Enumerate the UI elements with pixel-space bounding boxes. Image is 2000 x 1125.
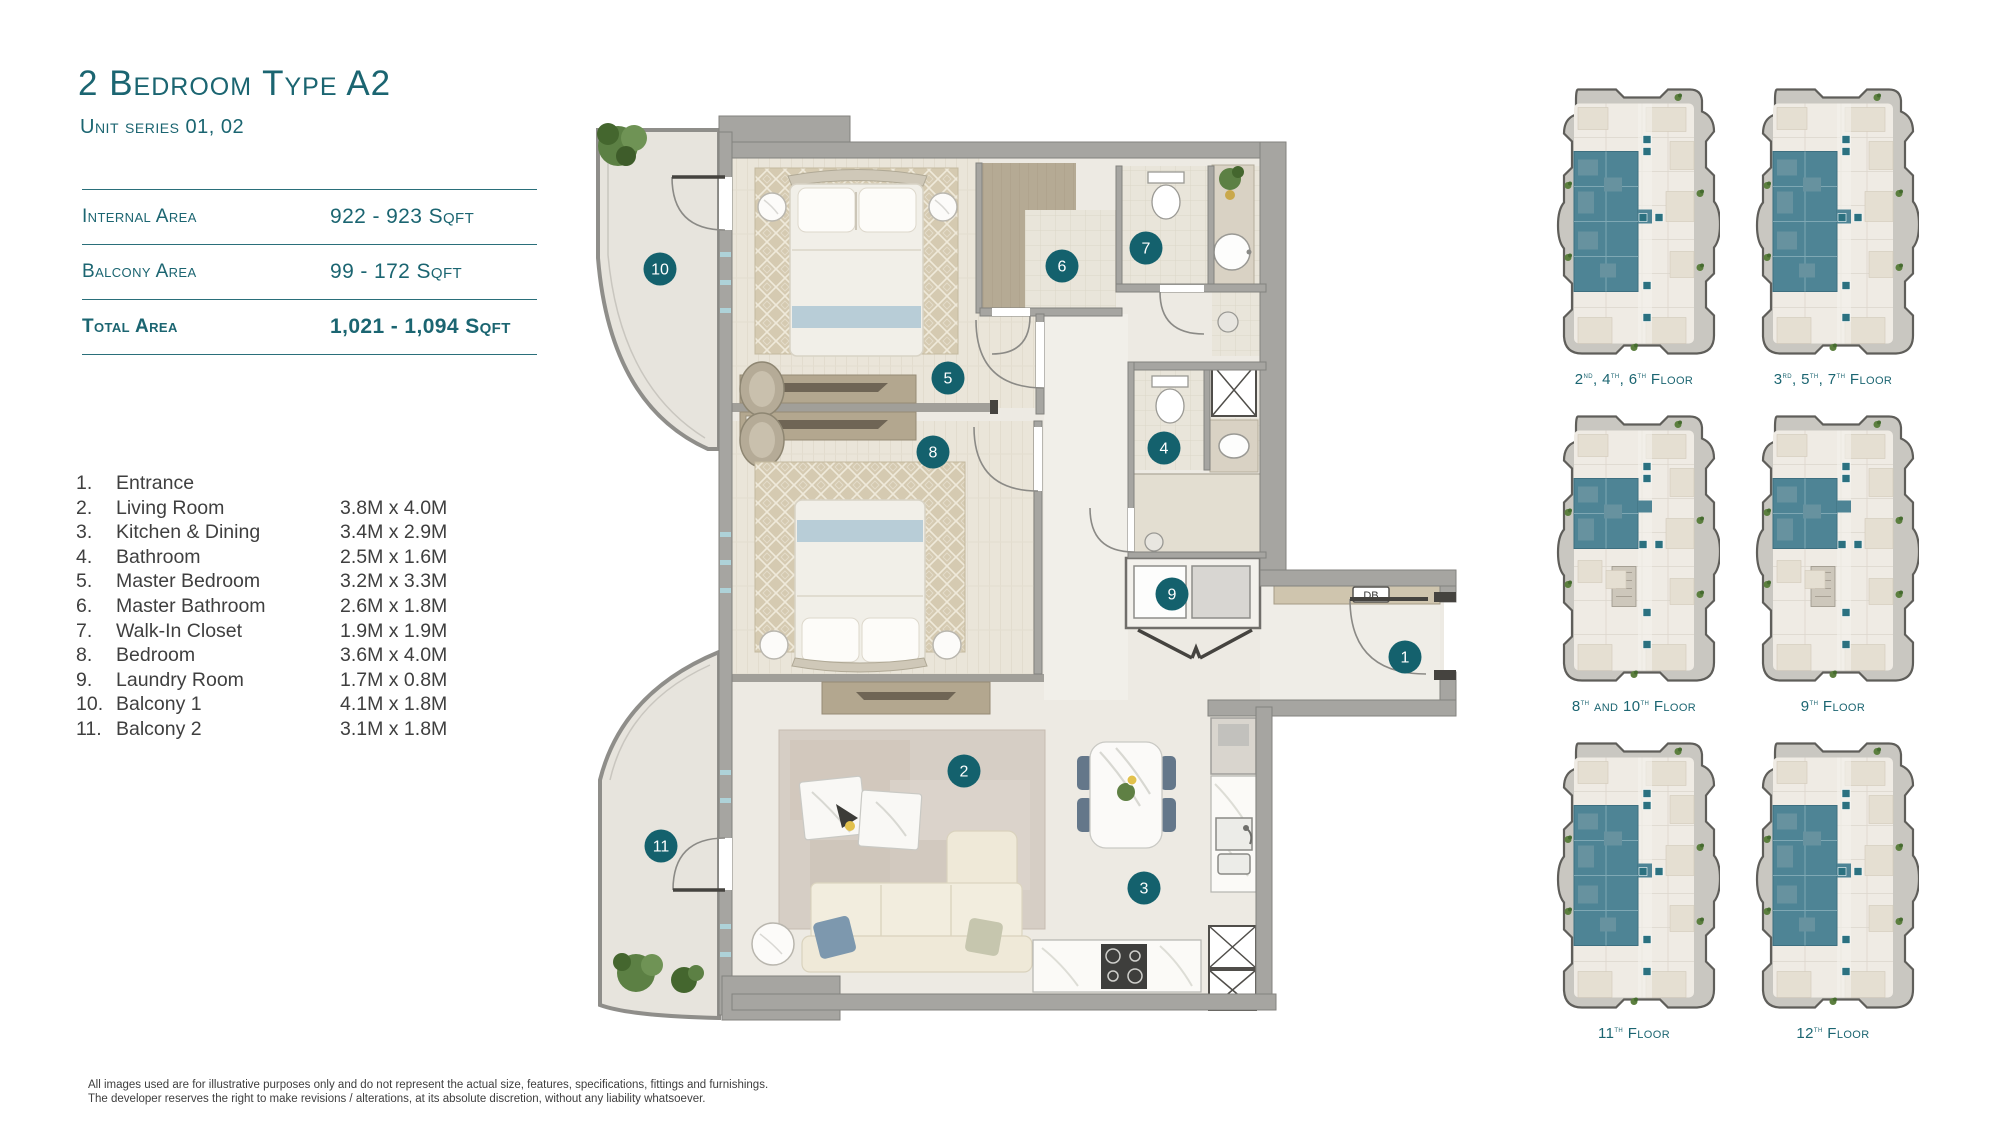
svg-text:11: 11 [653,839,670,856]
floor-plate-2 [1747,78,1919,370]
room-list-row: 6.Master Bathroom2.6M x 1.8M [76,595,496,620]
floor-plate-label: 12th Floor [1723,1024,1943,1042]
dining-area [1077,742,1176,848]
area-label: Balcony Area [82,261,197,283]
room-list-row: 10.Balcony 14.1M x 1.8M [76,693,496,718]
svg-text:9: 9 [1168,587,1177,604]
plan-marker-5: 5 [932,362,965,395]
area-value: 99 - 172 Sqft [330,260,462,284]
plan-marker-3: 3 [1128,872,1161,905]
room-num: 8. [76,644,92,667]
disclaimer-line: All images used are for illustrative pur… [88,1078,768,1092]
area-label: Internal Area [82,206,197,228]
room-name: Laundry Room [116,669,244,692]
room-list-row: 9.Laundry Room1.7M x 0.8M [76,669,496,694]
area-value: 1,021 - 1,094 Sqft [330,315,511,339]
room-list-row: 8.Bedroom3.6M x 4.0M [76,644,496,669]
area-value: 922 - 923 Sqft [330,205,474,229]
room-dims: 3.8M x 4.0M [340,497,447,520]
room-num: 3. [76,521,92,544]
plan-marker-7: 7 [1130,232,1163,265]
room-name: Entrance [116,472,194,495]
room-name: Walk-In Closet [116,620,242,643]
page-subtitle: Unit series 01, 02 [80,116,244,139]
room-num: 2. [76,497,92,520]
room-name: Master Bedroom [116,570,260,593]
room-num: 10. [76,693,103,716]
room-dims: 1.7M x 0.8M [340,669,447,692]
floor-plate-1 [1548,78,1720,370]
svg-text:1: 1 [1401,650,1410,667]
room-num: 6. [76,595,92,618]
svg-text:7: 7 [1142,241,1151,258]
room-name: Living Room [116,497,224,520]
svg-text:10: 10 [651,262,669,279]
area-row-total: Total Area 1,021 - 1,094 Sqft [82,300,537,355]
floor-plate-3 [1548,405,1720,697]
svg-text:8: 8 [929,445,938,462]
area-row-balcony: Balcony Area 99 - 172 Sqft [82,245,537,300]
room-num: 11. [76,718,102,741]
room-num: 5. [76,570,92,593]
area-table: Internal Area 922 - 923 Sqft Balcony Are… [82,189,537,355]
room-num: 4. [76,546,92,569]
floor-plate-label: 9th Floor [1723,697,1943,715]
room-name: Balcony 1 [116,693,202,716]
plan-marker-2: 2 [948,755,981,788]
room-list-row: 2.Living Room3.8M x 4.0M [76,497,496,522]
svg-text:3: 3 [1140,881,1149,898]
area-label: Total Area [82,316,178,338]
plan-marker-10: 10 [644,253,677,286]
master-bedroom [755,168,958,356]
room-list-row: 11.Balcony 23.1M x 1.8M [76,718,496,743]
room-dims: 3.1M x 1.8M [340,718,447,741]
room-name: Balcony 2 [116,718,202,741]
plan-marker-11: 11 [645,830,678,863]
plan-marker-6: 6 [1046,250,1079,283]
floor-plate-label: 8th and 10th Floor [1524,697,1744,715]
plan-marker-4: 4 [1148,432,1181,465]
svg-text:2: 2 [960,764,969,781]
room-list-row: 7.Walk-In Closet1.9M x 1.9M [76,620,496,645]
floor-plate-4 [1747,405,1919,697]
room-dims: 2.6M x 1.8M [340,595,447,618]
room-legend-list: 1.Entrance2.Living Room3.8M x 4.0M3.Kitc… [76,472,496,743]
room-num: 1. [76,472,92,495]
floor-plate-5 [1548,732,1720,1024]
room-name: Master Bathroom [116,595,266,618]
room-dims: 3.4M x 2.9M [340,521,447,544]
plan-marker-8: 8 [917,436,950,469]
room-name: Kitchen & Dining [116,521,260,544]
room-num: 7. [76,620,92,643]
bedroom [755,462,965,672]
room-dims: 1.9M x 1.9M [340,620,447,643]
room-name: Bathroom [116,546,201,569]
svg-text:6: 6 [1058,259,1067,276]
room-list-row: 1.Entrance [76,472,496,497]
floor-plan: DB [560,80,1510,1030]
svg-text:4: 4 [1160,441,1169,458]
room-dims: 3.2M x 3.3M [340,570,447,593]
plan-marker-1: 1 [1389,641,1422,674]
room-dims: 2.5M x 1.6M [340,546,447,569]
room-num: 9. [76,669,92,692]
room-list-row: 5.Master Bedroom3.2M x 3.3M [76,570,496,595]
room-dims: 3.6M x 4.0M [340,644,447,667]
svg-text:5: 5 [944,371,953,388]
floor-plate-label: 3rd, 5th, 7th Floor [1723,370,1943,388]
floor-plate-label: 2nd, 4th, 6th Floor [1524,370,1744,388]
area-row-internal: Internal Area 922 - 923 Sqft [82,190,537,245]
room-list-row: 3.Kitchen & Dining3.4M x 2.9M [76,521,496,546]
floor-plate-label: 11th Floor [1524,1024,1744,1042]
room-name: Bedroom [116,644,195,667]
disclaimer: All images used are for illustrative pur… [88,1078,768,1106]
room-dims: 4.1M x 1.8M [340,693,447,716]
floor-plate-6 [1747,732,1919,1024]
disclaimer-line: The developer reserves the right to make… [88,1092,768,1106]
plan-marker-9: 9 [1156,578,1189,611]
page-title: 2 Bedroom Type A2 [78,64,391,104]
room-list-row: 4.Bathroom2.5M x 1.6M [76,546,496,571]
